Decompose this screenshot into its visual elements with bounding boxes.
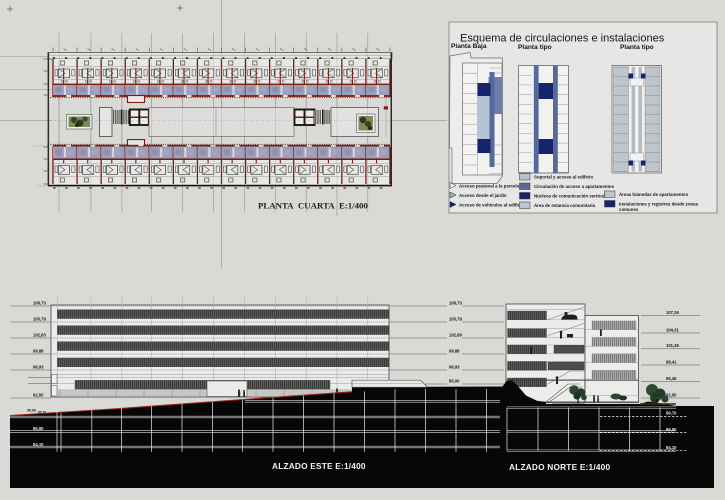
svg-text:Área de estancia comunitaria: Área de estancia comunitaria: [534, 203, 596, 208]
svg-text:Acceso desde el jardín: Acceso desde el jardín: [459, 193, 507, 198]
svg-text:95,00: 95,00: [449, 379, 460, 384]
svg-text:Instalaciones y registros desd: Instalaciones y registros desde zonas: [619, 202, 699, 207]
svg-text:Planta Baja: Planta Baja: [451, 43, 487, 50]
svg-text:92,50: 92,50: [666, 392, 677, 397]
svg-text:Núcleos de comunicación vertic: Núcleos de comunicación vertical: [534, 194, 605, 199]
svg-text:PLANTA CUARTA E:1/400: PLANTA CUARTA E:1/400: [258, 201, 368, 211]
svg-text:Acceso peatonal a la parcela: Acceso peatonal a la parcela: [459, 184, 520, 189]
svg-text:86,90: 86,90: [666, 427, 677, 432]
svg-text:95,46: 95,46: [666, 376, 677, 381]
svg-text:ALZADO ESTE E:1/400: ALZADO ESTE E:1/400: [272, 461, 366, 471]
svg-text:Soportal y acceso al edificio: Soportal y acceso al edificio: [534, 175, 593, 180]
svg-text:89,70: 89,70: [666, 411, 677, 416]
svg-text:108,73: 108,73: [449, 301, 462, 306]
svg-text:96,93: 96,93: [449, 365, 460, 370]
svg-text:Áreas húmedas de apartamentos: Áreas húmedas de apartamentos: [619, 192, 689, 197]
svg-text:104,31: 104,31: [666, 327, 679, 332]
svg-text:96,93: 96,93: [33, 365, 44, 370]
svg-text:92,50: 92,50: [33, 393, 44, 398]
svg-text:Planta tipo: Planta tipo: [518, 44, 552, 51]
svg-text:105,78: 105,78: [449, 317, 462, 322]
svg-text:84,10: 84,10: [666, 445, 677, 450]
svg-text:99,88: 99,88: [449, 349, 460, 354]
svg-text:99,88: 99,88: [33, 349, 44, 354]
svg-text:Acceso de vehículos al edifici: Acceso de vehículos al edificio: [459, 203, 524, 208]
svg-text:107,26: 107,26: [666, 310, 679, 315]
svg-text:102,89: 102,89: [449, 333, 462, 338]
svg-text:Circulación de acceso a aparta: Circulación de acceso a apartamentos: [534, 184, 615, 189]
svg-text:84,10: 84,10: [33, 442, 44, 447]
svg-text:102,83: 102,83: [33, 333, 46, 338]
svg-text:98,41: 98,41: [666, 359, 677, 364]
svg-text:ALZADO NORTE E:1/400: ALZADO NORTE E:1/400: [509, 462, 610, 472]
svg-text:105,78: 105,78: [33, 317, 46, 322]
svg-text:108,73: 108,73: [33, 301, 46, 306]
svg-text:comunes: comunes: [619, 207, 639, 212]
svg-text:Esquema de circulaciones e ins: Esquema de circulaciones e instalaciones: [460, 33, 665, 45]
svg-text:101,36: 101,36: [666, 343, 679, 348]
svg-text:Planta tipo: Planta tipo: [620, 44, 654, 51]
svg-text:86,90: 86,90: [33, 426, 44, 431]
svg-text:90,06: 90,06: [27, 409, 36, 413]
